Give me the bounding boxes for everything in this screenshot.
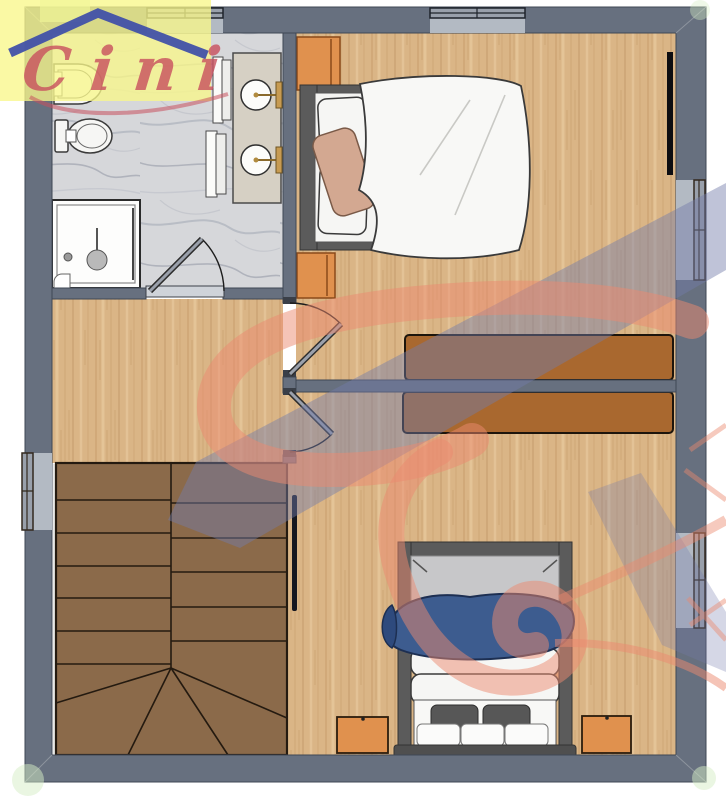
shower-head xyxy=(87,250,107,270)
corner-accent xyxy=(690,0,710,20)
shower xyxy=(52,200,140,288)
vanity-counter xyxy=(233,53,281,203)
faucet xyxy=(276,82,282,108)
cushion xyxy=(461,724,504,746)
bed-double-top xyxy=(300,76,530,258)
nightstand xyxy=(582,716,631,753)
partition-wall-vertical xyxy=(283,33,296,303)
nightstand xyxy=(337,717,388,753)
cushion xyxy=(505,724,548,746)
vanity xyxy=(233,53,282,203)
corner-accent xyxy=(692,766,716,790)
bathroom-wall xyxy=(52,288,146,299)
corner-accent xyxy=(12,764,44,796)
door-threshold xyxy=(146,286,224,297)
duvet xyxy=(359,76,530,258)
window-sill xyxy=(430,18,525,33)
tv-wall-mounted xyxy=(667,52,673,175)
toilet xyxy=(55,119,112,153)
shower-drain xyxy=(64,253,72,261)
logo: Cini xyxy=(0,0,228,113)
floor-plan: Cini xyxy=(0,0,726,801)
window-sill xyxy=(33,453,52,530)
nightstand xyxy=(297,253,335,298)
bed-frame-top-rail xyxy=(398,542,572,556)
window-left xyxy=(22,453,52,530)
bed-headboard xyxy=(300,85,317,250)
window-top-right xyxy=(430,8,525,33)
faucet xyxy=(276,147,282,173)
cushion xyxy=(417,724,460,746)
nightstand xyxy=(297,37,340,90)
